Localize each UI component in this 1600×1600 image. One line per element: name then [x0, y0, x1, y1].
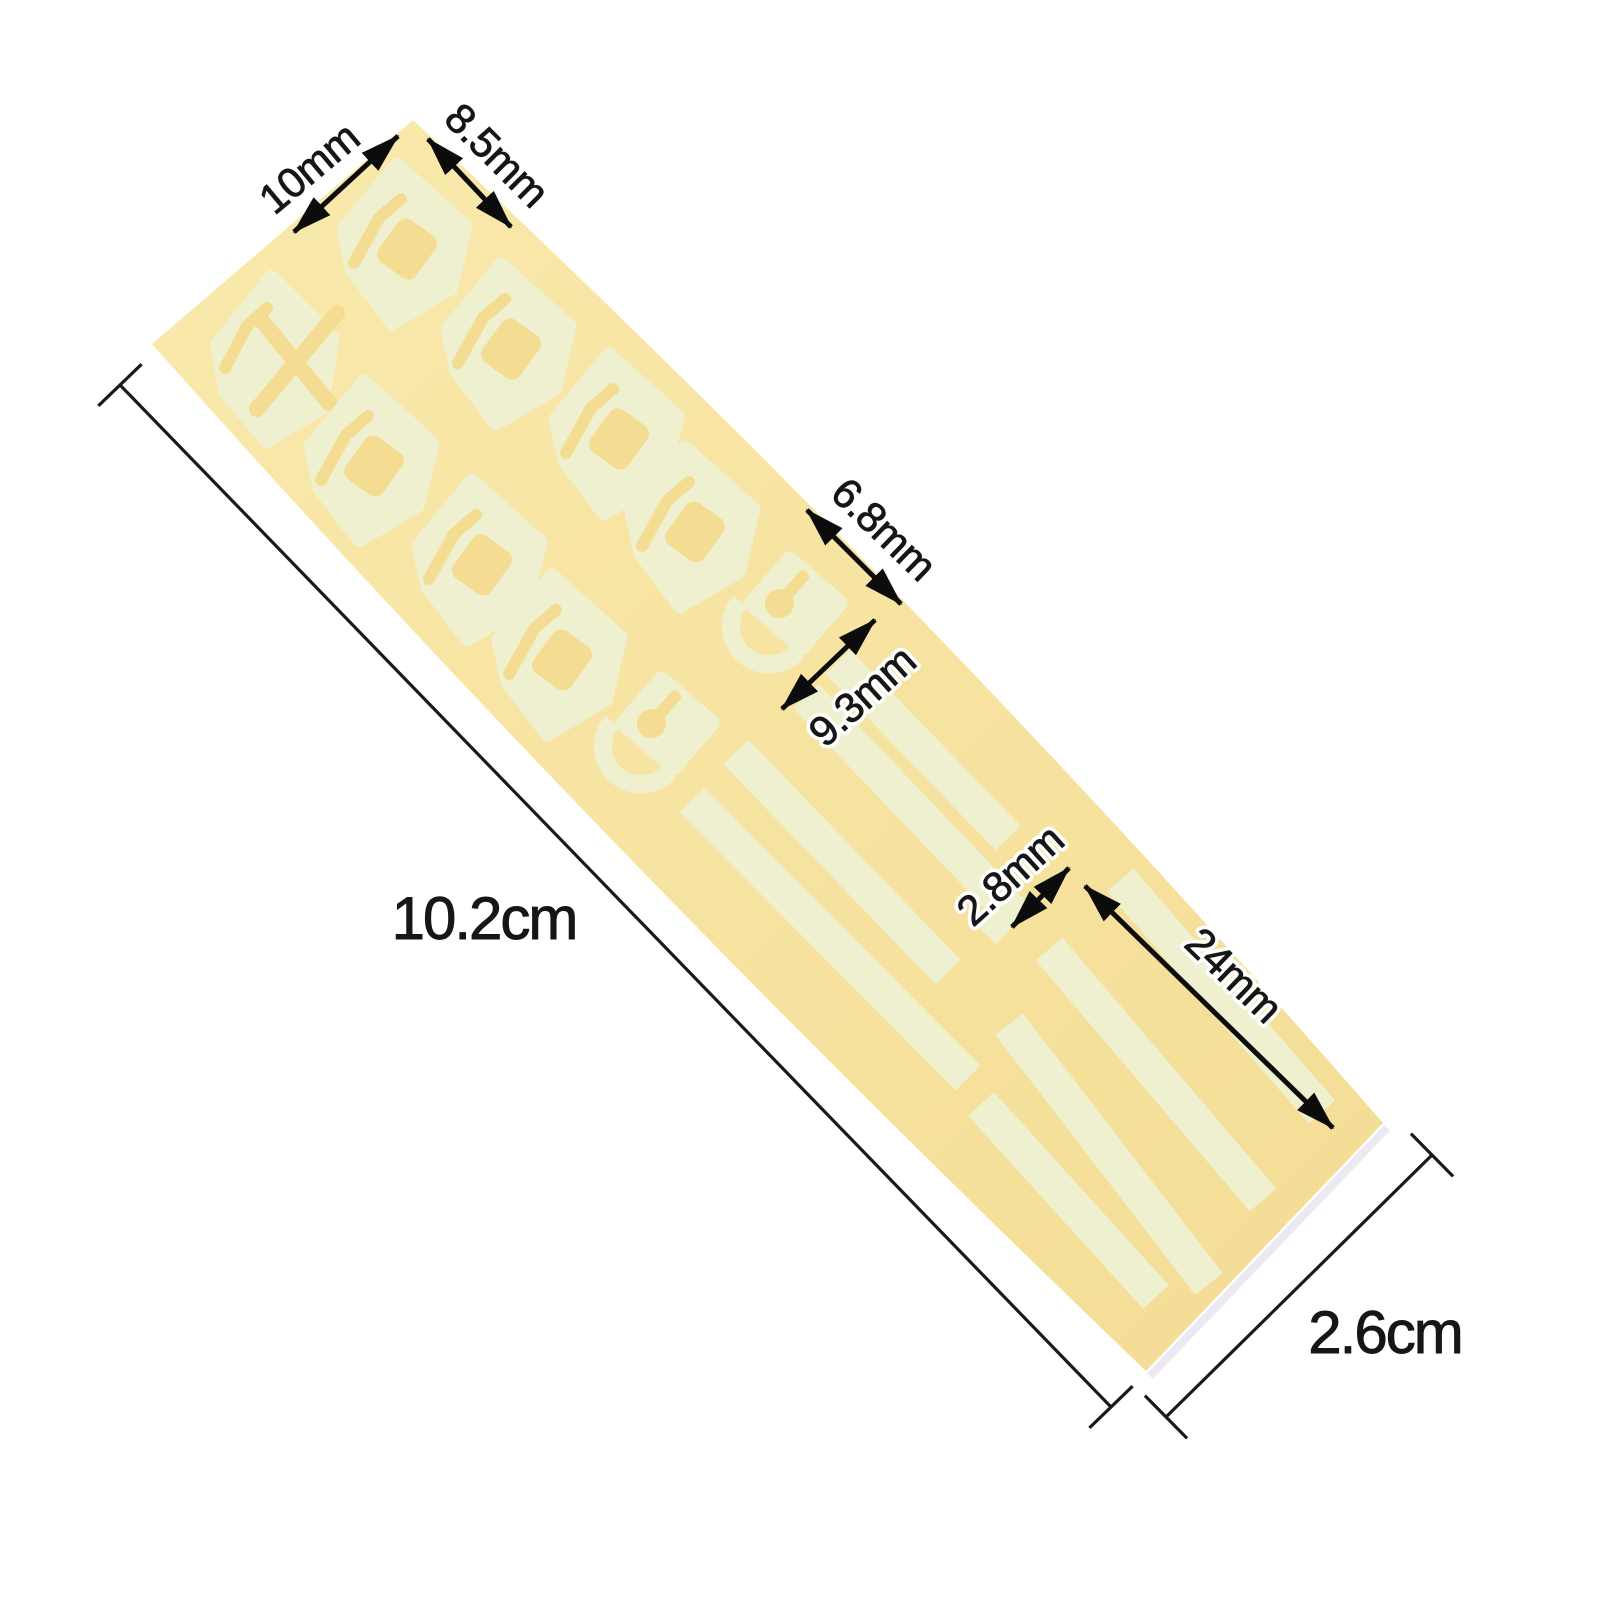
svg-text:10.2cm: 10.2cm — [392, 885, 577, 952]
svg-text:2.6cm: 2.6cm — [1308, 1299, 1461, 1366]
